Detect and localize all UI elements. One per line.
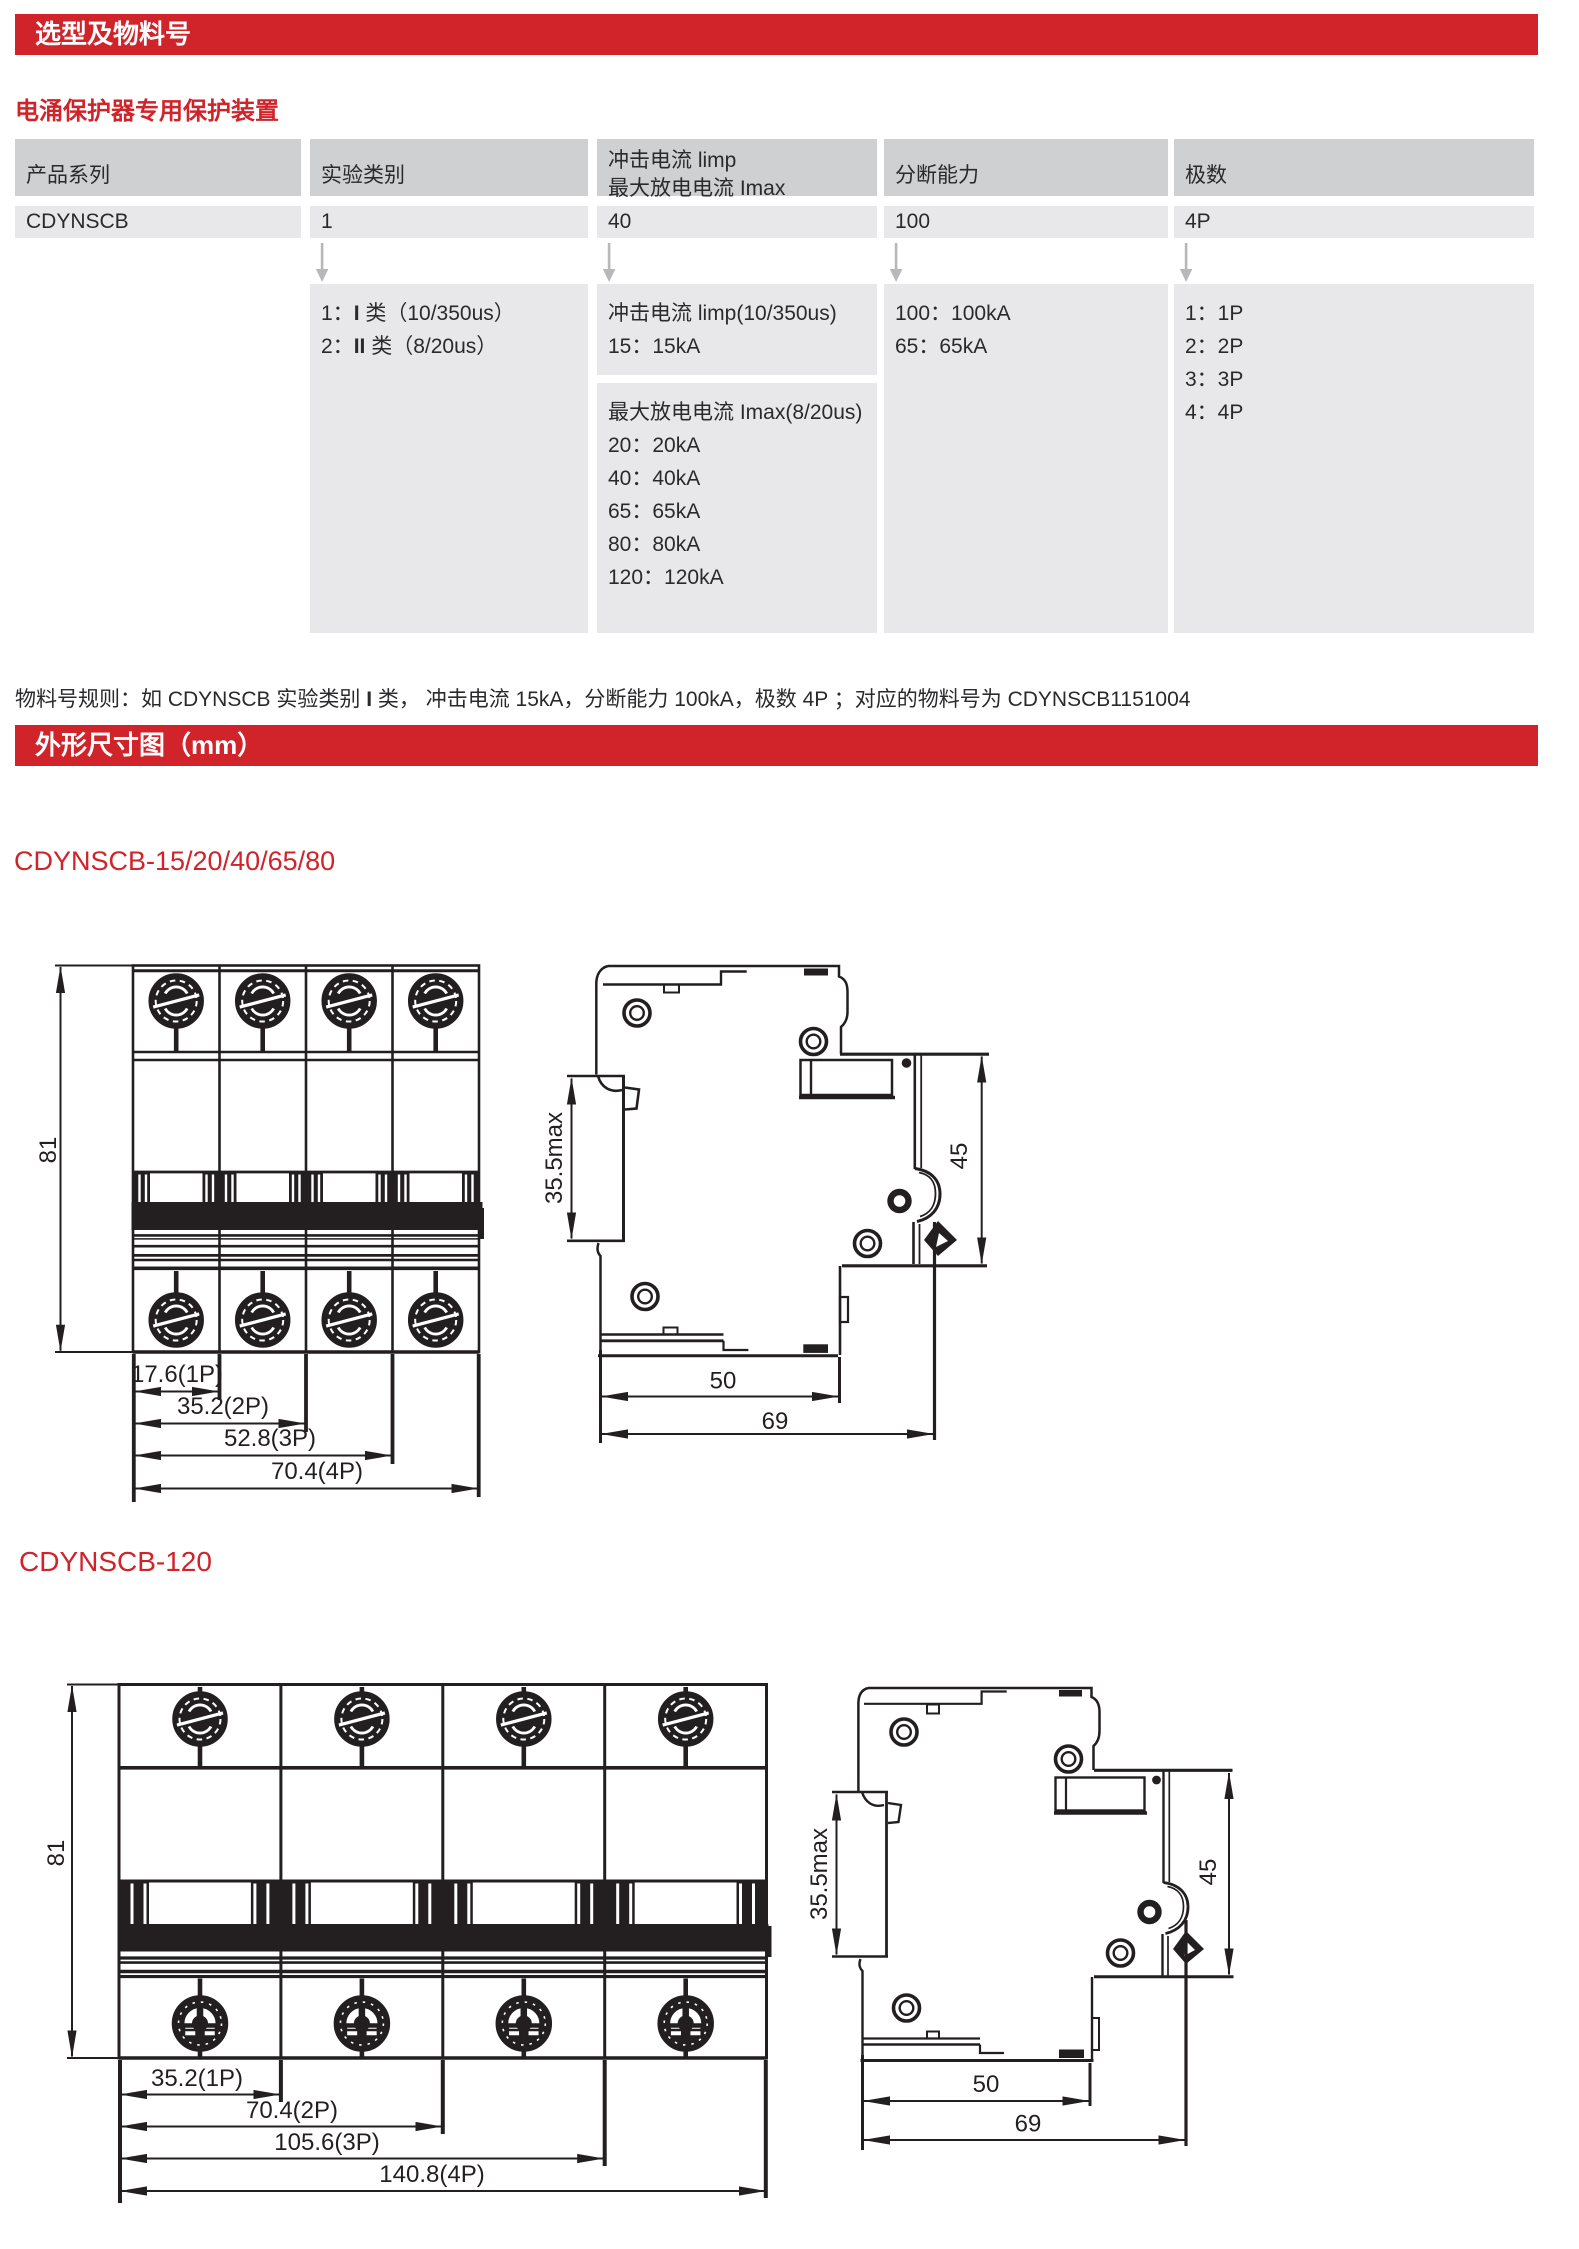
svg-text:140.8(4P): 140.8(4P) xyxy=(379,2161,484,2188)
svg-text:69: 69 xyxy=(1015,2111,1042,2138)
svg-text:105.6(3P): 105.6(3P) xyxy=(274,2129,379,2156)
svg-text:52.8(3P): 52.8(3P) xyxy=(224,1425,316,1452)
svg-text:35.5max: 35.5max xyxy=(541,1112,568,1204)
svg-text:35.2(1P): 35.2(1P) xyxy=(151,2065,243,2092)
svg-text:50: 50 xyxy=(710,1368,737,1395)
svg-text:81: 81 xyxy=(43,1840,70,1867)
svg-text:81: 81 xyxy=(35,1137,62,1164)
svg-text:35.2(2P): 35.2(2P) xyxy=(177,1393,269,1420)
svg-text:45: 45 xyxy=(946,1143,973,1170)
svg-text:70.4(4P): 70.4(4P) xyxy=(271,1458,363,1485)
svg-text:45: 45 xyxy=(1195,1859,1222,1886)
svg-text:17.6(1P): 17.6(1P) xyxy=(131,1361,223,1388)
svg-text:35.5max: 35.5max xyxy=(806,1828,833,1920)
svg-text:69: 69 xyxy=(762,1408,789,1435)
svg-text:70.4(2P): 70.4(2P) xyxy=(246,2097,338,2124)
svg-text:50: 50 xyxy=(973,2071,1000,2098)
